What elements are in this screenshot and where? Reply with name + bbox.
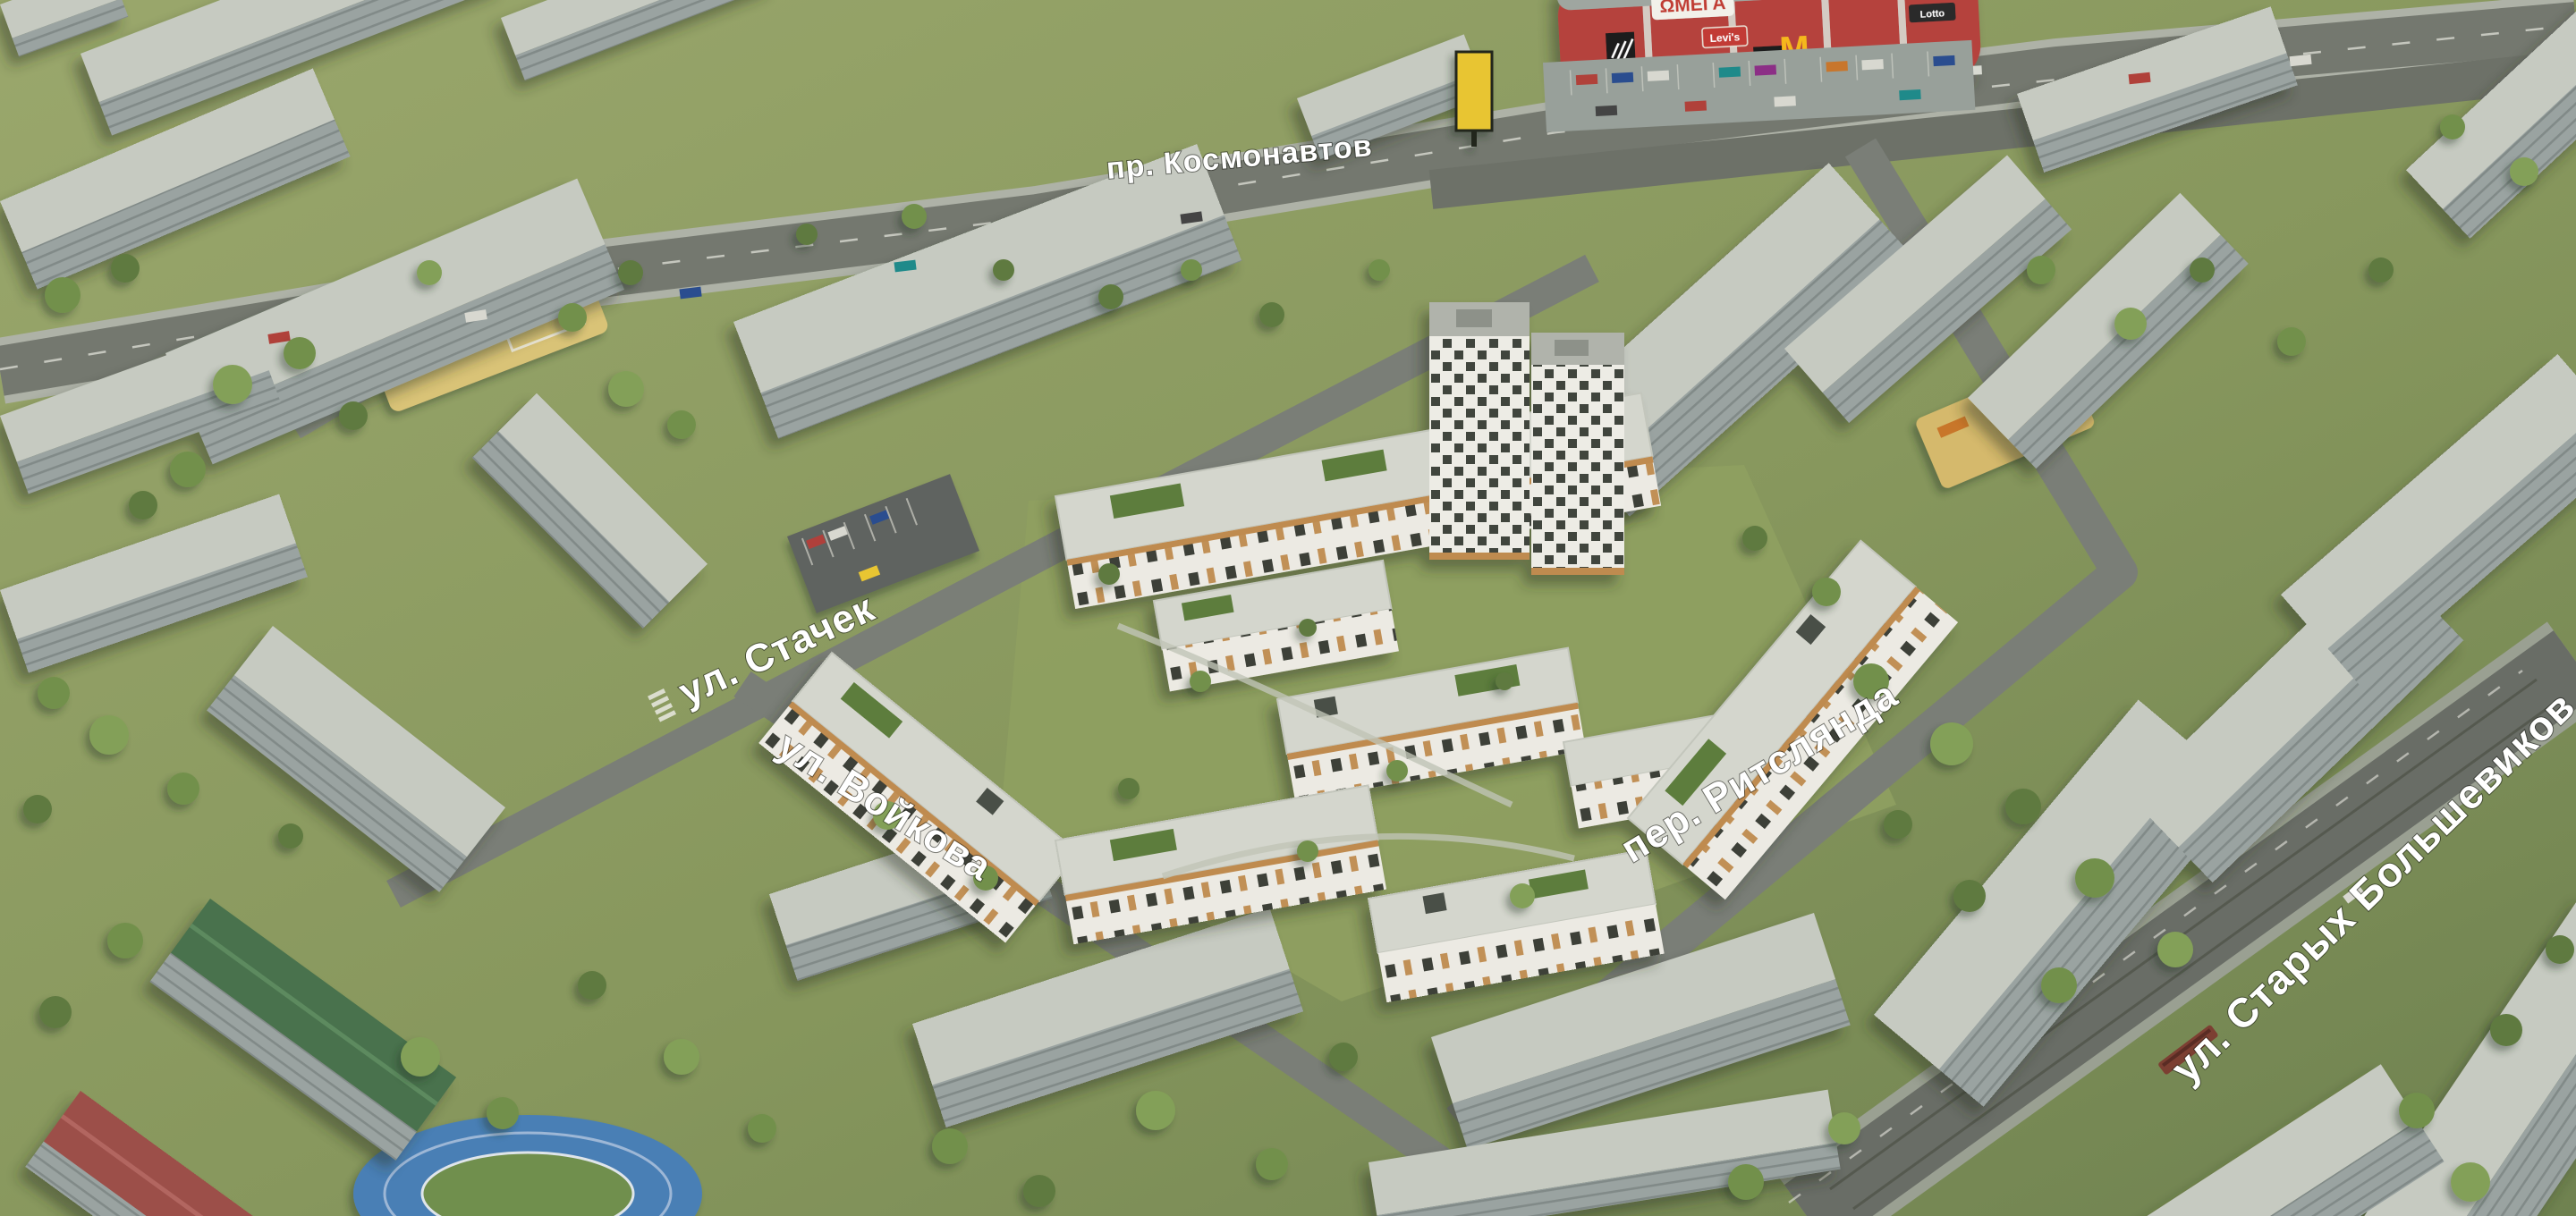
tower [1531,333,1624,575]
brand-board-levis: Levi's [1702,26,1748,48]
tower [1429,302,1529,560]
brand-board-lotto: Lotto [1909,3,1956,23]
city-scene: ΩМЕГА Levi's Lotto M [0,0,2576,1216]
svg-text:Lotto: Lotto [1919,8,1945,20]
svg-text:Levi's: Levi's [1709,30,1741,45]
aerial-render: ΩМЕГА Levi's Lotto M [0,0,2576,1216]
